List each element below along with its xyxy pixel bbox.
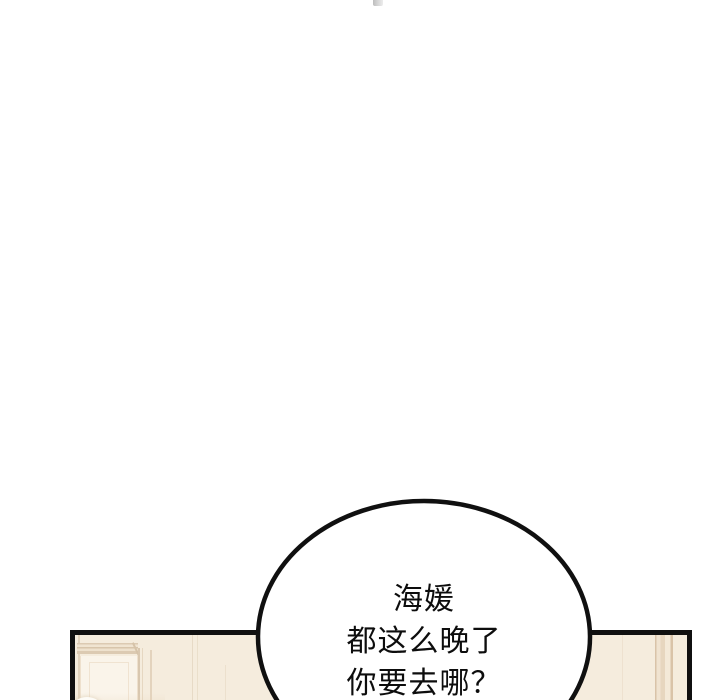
dialogue-text: 海媛 都这么晚了 你要去哪？ <box>264 579 584 700</box>
wall-seam-line <box>225 665 226 700</box>
comic-page: 海媛 都这么晚了 你要去哪？ <box>0 0 720 700</box>
wall-seam-line <box>192 635 193 700</box>
dialogue-line: 海媛 <box>264 579 584 621</box>
dialogue-line: 都这么晚了 <box>264 621 584 663</box>
door-lintel-molding <box>77 643 138 654</box>
cropped-art-smudge <box>373 0 383 6</box>
wall-corner-stripe <box>655 635 673 700</box>
dialogue-line: 你要去哪？ <box>264 663 584 700</box>
wall-seam-line <box>197 635 198 700</box>
wall-seam-line <box>622 635 623 700</box>
